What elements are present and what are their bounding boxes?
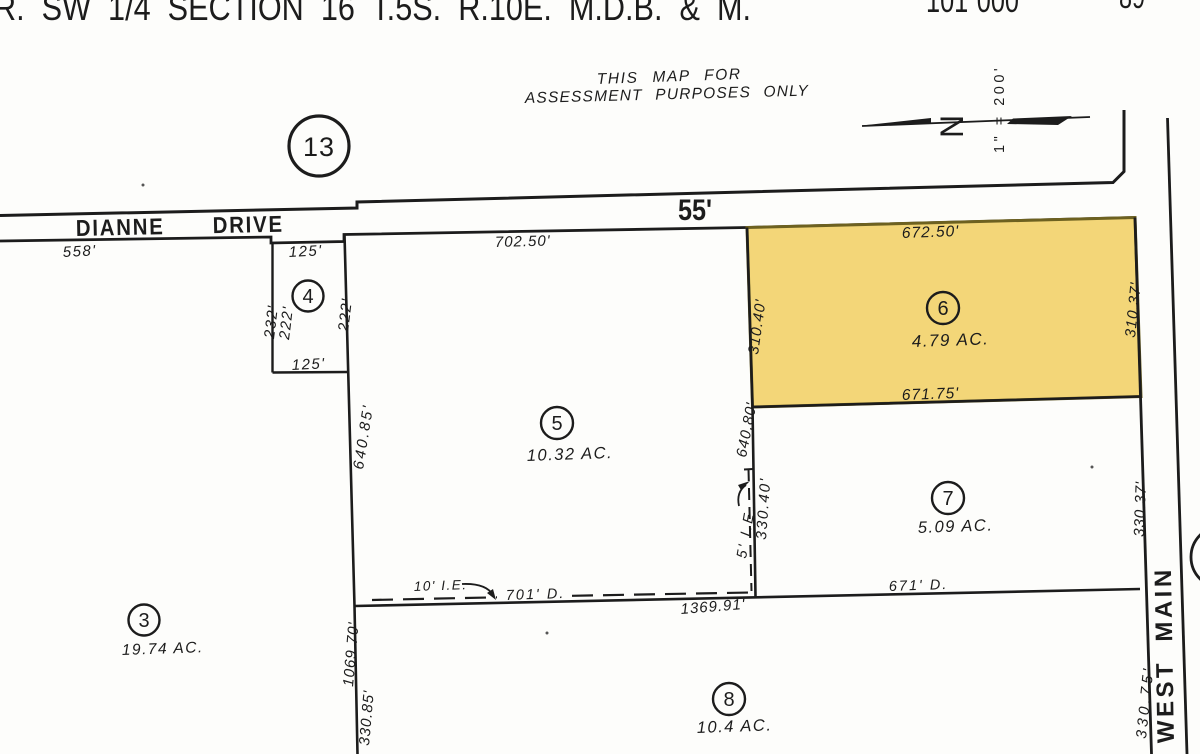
svg-text:3: 3	[138, 610, 149, 632]
svg-text:330.37': 330.37'	[1131, 481, 1150, 537]
svg-text:6: 6	[937, 298, 948, 320]
svg-text:672.50': 672.50'	[902, 223, 960, 242]
svg-text:10' I.E.: 10' I.E.	[414, 577, 468, 594]
svg-text:4: 4	[302, 286, 313, 308]
svg-text:89: 89	[1119, 0, 1145, 15]
svg-text:WEST MAIN: WEST MAIN	[1150, 566, 1180, 743]
svg-text:7: 7	[942, 488, 953, 510]
svg-text:558': 558'	[62, 242, 97, 261]
svg-text:8: 8	[723, 689, 734, 711]
svg-text:N: N	[934, 115, 970, 138]
svg-text:702.50': 702.50'	[495, 233, 551, 251]
svg-text:5.09 AC.: 5.09 AC.	[918, 516, 994, 537]
svg-text:101 000: 101 000	[926, 0, 1019, 20]
svg-text:19.74 AC.: 19.74 AC.	[122, 639, 204, 659]
svg-text:4.79 AC.: 4.79 AC.	[911, 329, 989, 351]
svg-text:R. SW 1/4 SECTION 16 T.5S. R.1: R. SW 1/4 SECTION 16 T.5S. R.10E. M.D.B.…	[0, 0, 751, 28]
svg-text:10.32 AC.: 10.32 AC.	[527, 444, 614, 465]
svg-text:10.4 AC.: 10.4 AC.	[697, 716, 773, 737]
svg-text:671' D.: 671' D.	[889, 577, 949, 595]
svg-text:1" = 200': 1" = 200'	[992, 65, 1008, 153]
svg-text:55': 55'	[678, 194, 712, 227]
svg-text:125': 125'	[291, 355, 326, 374]
svg-text:DIANNE DRIVE: DIANNE DRIVE	[76, 211, 284, 241]
svg-text:125': 125'	[288, 242, 323, 261]
svg-text:701' D.: 701' D.	[506, 586, 566, 604]
svg-text:13: 13	[303, 132, 335, 162]
svg-text:5: 5	[551, 413, 562, 435]
